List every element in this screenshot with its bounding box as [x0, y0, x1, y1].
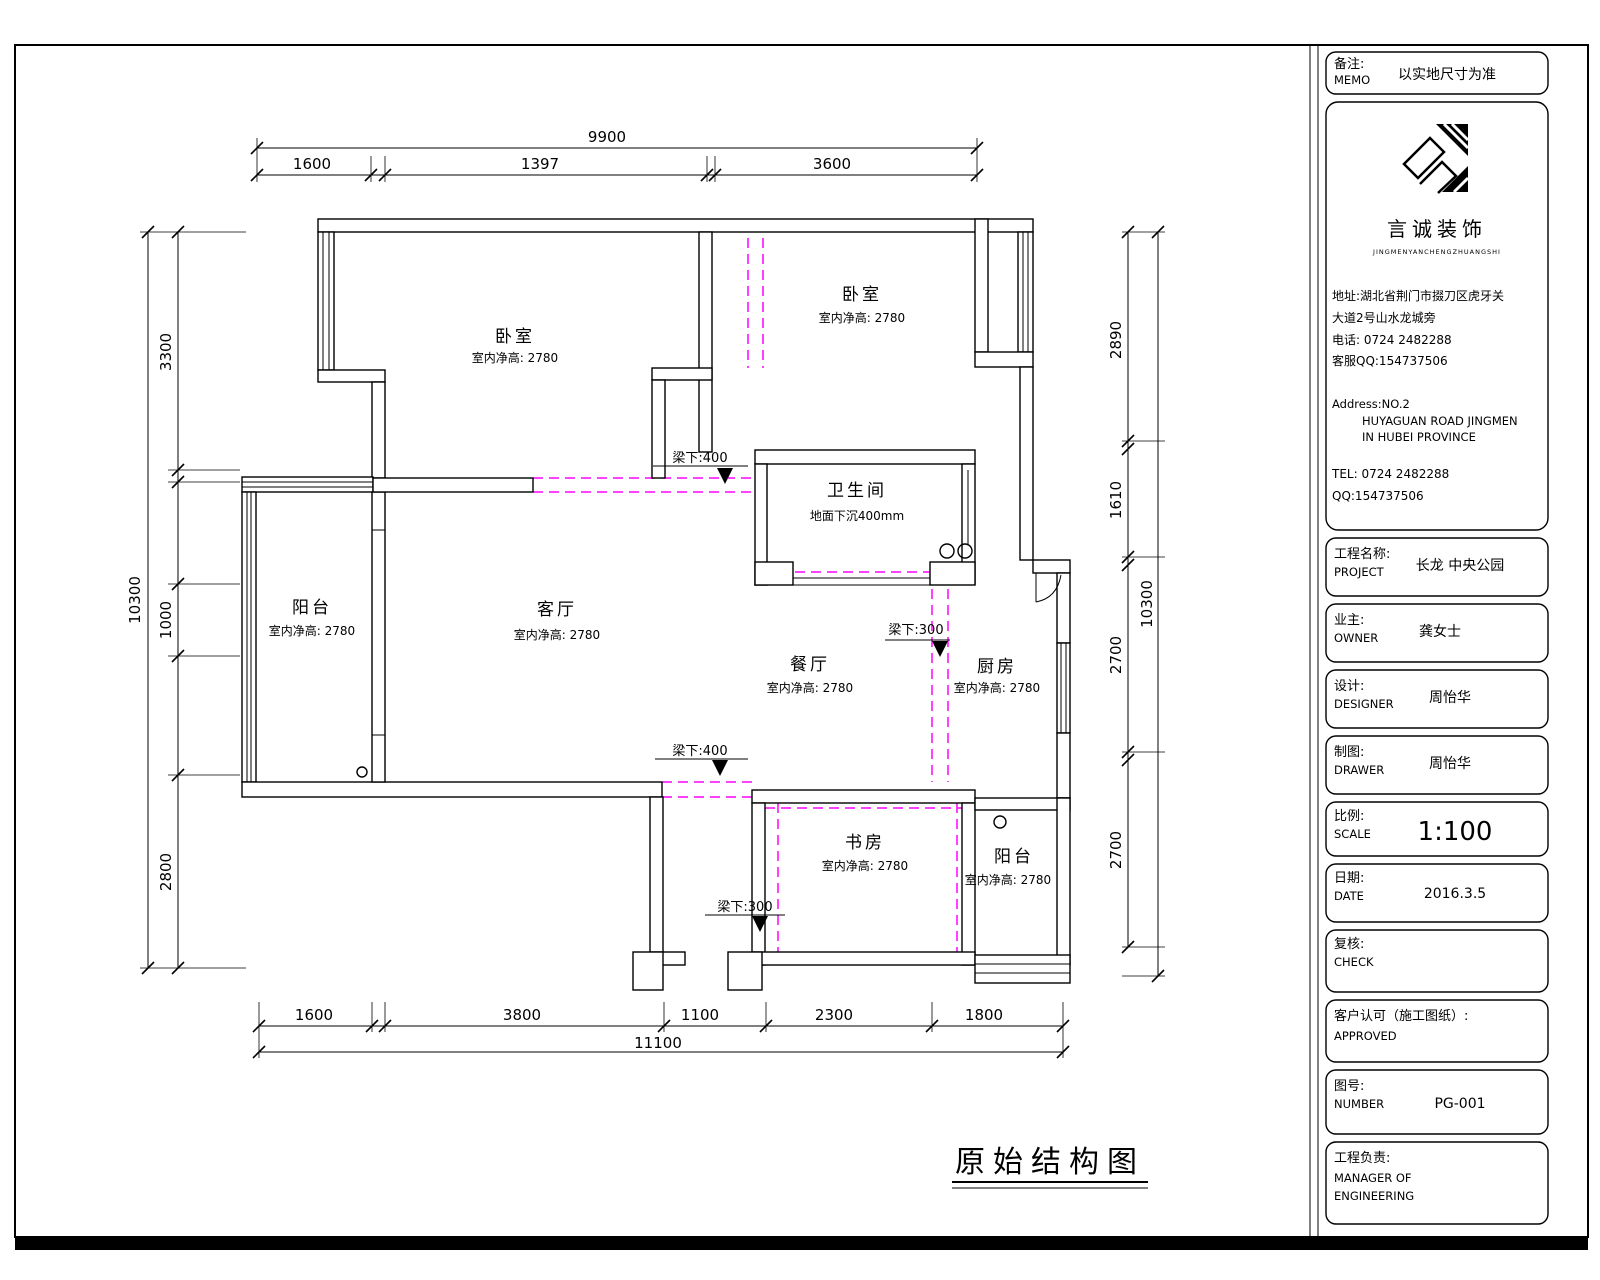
- room-balcony-right-name: 阳台: [994, 847, 1034, 867]
- designer-label-cn: 设计:: [1334, 679, 1364, 694]
- room-kitchen-name: 厨房: [977, 657, 1017, 677]
- room-dining-height: 室内净高: 2780: [767, 680, 853, 695]
- room-living-name: 客厅: [537, 600, 577, 620]
- scale-value: 1:100: [1418, 817, 1493, 847]
- beam-label: 梁下:400: [672, 451, 727, 466]
- owner-label-cn: 业主:: [1334, 613, 1364, 628]
- walls: [242, 219, 1070, 990]
- dim-left-seg2: 1000: [157, 601, 175, 639]
- beam-label: 梁下:300: [888, 623, 943, 638]
- approved-label-cn: 客户认可（施工图纸）:: [1334, 1008, 1468, 1024]
- drawing-sheet: 梁下:400 梁下:300 梁下:400 梁下:300 卧室 室内净高: 278…: [0, 0, 1600, 1280]
- memo-label-cn: 备注:: [1334, 56, 1364, 72]
- dim-top-seg2: 1397: [521, 155, 559, 173]
- sheet-title-text: 原始结构图: [955, 1145, 1145, 1180]
- check-label-en: CHECK: [1334, 955, 1374, 969]
- beam-lines: [533, 238, 962, 965]
- company-addr-en3: IN HUBEI PROVINCE: [1362, 430, 1476, 444]
- company-addr-cn2: 大道2号山水龙城旁: [1332, 310, 1436, 325]
- date-label-cn: 日期:: [1334, 871, 1364, 886]
- project-value: 长龙 中央公园: [1416, 558, 1504, 574]
- room-balcony-left-height: 室内净高: 2780: [269, 623, 355, 638]
- room-living-height: 室内净高: 2780: [514, 627, 600, 642]
- bottom-black-bar: [15, 1237, 1588, 1250]
- floor-plan-canvas: 梁下:400 梁下:300 梁下:400 梁下:300 卧室 室内净高: 278…: [0, 0, 1600, 1280]
- room-study-height: 室内净高: 2780: [822, 858, 908, 873]
- owner-value: 龚女士: [1419, 623, 1461, 640]
- dim-bottom-overall: 11100: [634, 1034, 682, 1052]
- dim-top-seg1: 1600: [293, 155, 331, 173]
- dim-right-seg2: 1610: [1107, 481, 1125, 519]
- designer-label-en: DESIGNER: [1334, 697, 1394, 711]
- company-name: 言诚装饰: [1387, 217, 1487, 241]
- beam-arrow-icon: [717, 468, 733, 484]
- scale-label-en: SCALE: [1334, 827, 1371, 841]
- manager-label-en2: ENGINEERING: [1334, 1189, 1414, 1203]
- memo-value: 以实地尺寸为准: [1398, 67, 1496, 83]
- company-qq-cn: 客服QQ:154737506: [1332, 353, 1448, 368]
- title-block: 备注: MEMO 以实地尺寸为准 言诚装饰 JINGMENYANCHENGZHU…: [1326, 52, 1548, 1224]
- check-label-cn: 复核:: [1334, 937, 1364, 952]
- room-bedroom2-name: 卧室: [842, 285, 882, 305]
- company-qq-en: QQ:154737506: [1332, 489, 1424, 503]
- memo-label-en: MEMO: [1334, 73, 1370, 87]
- company-logo-icon: [1404, 124, 1468, 193]
- manager-label-cn: 工程负责:: [1334, 1151, 1390, 1166]
- floor-drain-icon: [994, 816, 1006, 828]
- dim-right-seg1: 2890: [1107, 321, 1125, 359]
- company-tel-en: TEL: 0724 2482288: [1331, 467, 1449, 481]
- number-label-en: NUMBER: [1334, 1097, 1384, 1111]
- room-balcony-right-height: 室内净高: 2780: [965, 872, 1051, 887]
- beam-arrow-icon: [932, 641, 948, 657]
- designer-value: 周怡华: [1429, 690, 1471, 706]
- beam-label: 梁下:300: [717, 900, 772, 915]
- dim-bottom-seg3: 1100: [681, 1006, 719, 1024]
- room-bathroom-note: 地面下沉400mm: [810, 509, 904, 523]
- dim-right-overall: 10300: [1138, 580, 1156, 628]
- sheet-title: 原始结构图: [952, 1145, 1148, 1188]
- project-label-en: PROJECT: [1334, 565, 1385, 579]
- drawer-label-cn: 制图:: [1334, 745, 1364, 760]
- number-value: PG-001: [1434, 1096, 1485, 1112]
- dim-bottom-seg1: 1600: [295, 1006, 333, 1024]
- room-bathroom-name: 卫生间: [827, 481, 887, 501]
- company-addr-en2: HUYAGUAN ROAD JINGMEN: [1362, 414, 1518, 428]
- date-value: 2016.3.5: [1424, 886, 1486, 902]
- project-label-cn: 工程名称:: [1334, 546, 1390, 562]
- room-bedroom2-height: 室内净高: 2780: [819, 310, 905, 325]
- company-addr-cn1: 地址:湖北省荆门市掇刀区虎牙关: [1332, 288, 1504, 303]
- dim-bottom-seg5: 1800: [965, 1006, 1003, 1024]
- floor-drain-icon: [357, 767, 367, 777]
- company-phone-cn: 电话: 0724 2482288: [1332, 333, 1452, 347]
- sink-icon: [940, 544, 954, 558]
- date-label-en: DATE: [1334, 889, 1364, 903]
- owner-label-en: OWNER: [1334, 631, 1378, 645]
- scale-label-cn: 比例:: [1334, 809, 1364, 824]
- room-balcony-left-name: 阳台: [292, 598, 332, 618]
- dimensions: 9900 1600 1397 3600 1600 3800 1100 2300 …: [126, 128, 1165, 1058]
- room-study-name: 书房: [845, 833, 885, 853]
- dim-bottom-seg4: 2300: [815, 1006, 853, 1024]
- company-addr-en1: Address:NO.2: [1332, 397, 1410, 411]
- dim-bottom-seg2: 3800: [503, 1006, 541, 1024]
- company-tagline: JINGMENYANCHENGZHUANGSHI: [1372, 248, 1501, 256]
- dim-top-seg3: 3600: [813, 155, 851, 173]
- room-bedroom1-name: 卧室: [495, 327, 535, 347]
- room-dining-name: 餐厅: [790, 655, 830, 675]
- dim-right-seg3: 2700: [1107, 636, 1125, 674]
- dim-top-overall: 9900: [588, 128, 626, 146]
- dim-left-overall: 10300: [126, 576, 144, 624]
- beam-arrow-icon: [712, 760, 728, 776]
- dim-right-seg4: 2700: [1107, 831, 1125, 869]
- room-kitchen-height: 室内净高: 2780: [954, 680, 1040, 695]
- dim-left-seg1: 3300: [157, 333, 175, 371]
- room-bedroom1-height: 室内净高: 2780: [472, 350, 558, 365]
- drawer-value: 周怡华: [1429, 756, 1471, 772]
- approved-label-en: APPROVED: [1334, 1029, 1397, 1043]
- beam-label: 梁下:400: [672, 744, 727, 759]
- dim-left-seg3: 2800: [157, 853, 175, 891]
- number-label-cn: 图号:: [1334, 1079, 1364, 1094]
- manager-label-en1: MANAGER OF: [1334, 1171, 1412, 1185]
- drawer-label-en: DRAWER: [1334, 763, 1384, 777]
